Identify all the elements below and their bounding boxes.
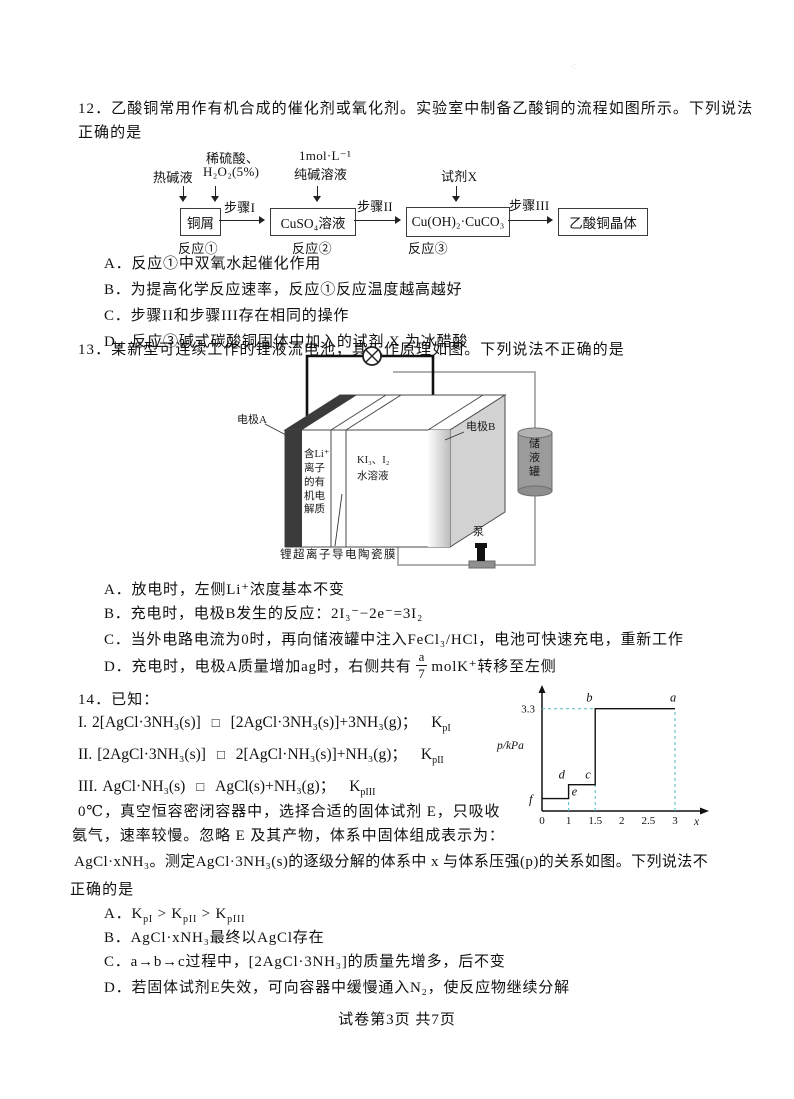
option-label: D． bbox=[104, 655, 131, 676]
electrode-b-label: 电极B bbox=[466, 421, 495, 435]
q14-para-line4: 正确的是 bbox=[70, 878, 134, 899]
flow-step1: 步骤I bbox=[224, 197, 255, 216]
option-text: a→b→c过程中，[2AgCl·3NH₃]的质量先增多，后不变 bbox=[131, 954, 506, 970]
k-symbol: K bbox=[349, 778, 360, 795]
electrode-b-front-shade bbox=[428, 430, 450, 547]
option-text: 反应①中双氧水起催化作用 bbox=[131, 256, 321, 272]
equation-number: III. bbox=[78, 778, 97, 795]
x-tick-label: 2 bbox=[619, 815, 625, 827]
y-tick-label: 3.3 bbox=[521, 704, 535, 716]
point-label-c: c bbox=[585, 768, 591, 782]
q12-option-b: B．为提高化学反应速率，反应①反应温度越高越好 bbox=[104, 278, 462, 299]
k-subscript: pI bbox=[442, 723, 450, 734]
down-arrow-icon bbox=[317, 186, 318, 201]
fraction-denominator: 7 bbox=[418, 666, 425, 681]
q14-option-a: A．KpI > KpII > KpIII bbox=[104, 902, 245, 925]
x-axis-label: x bbox=[693, 816, 700, 828]
flow-input-reagent-x: 试剂X bbox=[441, 166, 477, 185]
q14-option-b: B．AgCl·xNH₃最终以AgCl存在 bbox=[104, 926, 324, 947]
flow-box-cuso4: CuSO₄溶液 bbox=[270, 208, 356, 236]
q12-stem-line1: 12．乙酸铜常用作有机合成的催化剂或氧化剂。实验室中制备乙酸铜的流程如图所示。下… bbox=[78, 97, 753, 118]
k-subscript: pIII bbox=[360, 787, 375, 798]
q14-chart-axes bbox=[539, 685, 710, 815]
right-arrow-icon bbox=[219, 220, 264, 221]
right-arrow-icon bbox=[508, 220, 552, 221]
pump-base bbox=[469, 561, 495, 568]
point-label-a: a bbox=[670, 691, 676, 705]
x-tick-label: 0 bbox=[539, 815, 545, 827]
solution-label-line1: KI₃、I₂ bbox=[357, 454, 389, 467]
point-label-e: e bbox=[572, 785, 578, 799]
k-symbol: K bbox=[421, 746, 432, 763]
x-tick-label: 1.5 bbox=[588, 815, 602, 827]
equilibrium-constant: KpIII bbox=[349, 778, 375, 795]
q14-equation-2: II.[2AgCl·3NH₃(s)]□2[AgCl·NH₃(s)]+NH₃(g)… bbox=[78, 742, 444, 766]
option-text: 充电时，电极B发生的反应：2I₃⁻−2e⁻=3I₂ bbox=[131, 606, 423, 622]
option-label: B． bbox=[104, 606, 131, 622]
equilibrium-symbol: □ bbox=[217, 747, 225, 762]
q14-chart: 011.522.533.3abcdef p/kPa x bbox=[495, 683, 730, 835]
y-axis-label: p/kPa bbox=[496, 740, 524, 752]
pump-icon bbox=[477, 546, 485, 561]
equilibrium-constant: KpI bbox=[431, 714, 451, 731]
x-tick-label: 3 bbox=[672, 815, 678, 827]
option-text: 若固体试剂E失效，可向容器中缓慢通入N₂，使反应物继续分解 bbox=[131, 980, 569, 996]
storage-tank-bottom bbox=[518, 486, 552, 496]
flow-input-hot-alkali: 热碱液 bbox=[153, 167, 193, 186]
flow-step2: 步骤II bbox=[357, 196, 393, 215]
leader-electrode-a bbox=[265, 424, 286, 435]
option-label: D． bbox=[104, 980, 131, 996]
option-label: B． bbox=[104, 930, 131, 946]
flow-box-copper: 铜屑 bbox=[180, 208, 221, 236]
stray-mark: ⁖ bbox=[570, 62, 577, 73]
flow-input-soda-line1: 1mol·L⁻¹ bbox=[299, 148, 351, 164]
exam-page: ⁖ 12．乙酸铜常用作有机合成的催化剂或氧化剂。实验室中制备乙酸铜的流程如图所示… bbox=[0, 0, 794, 1099]
k-subscript: pI bbox=[143, 914, 153, 925]
right-arrow-icon bbox=[354, 220, 400, 221]
battery-diagram: 电极A 电极B 含Li⁺离子的有机电解质 KI₃、I₂ 水溶液 储液罐 泵 锂超… bbox=[185, 342, 615, 578]
q14-chart-svg: 011.522.533.3abcdef p/kPa x bbox=[495, 683, 730, 835]
option-label: C． bbox=[104, 308, 131, 324]
electrode-a-front bbox=[285, 430, 302, 547]
equation-number: II. bbox=[78, 746, 92, 763]
battery-diagram-svg bbox=[185, 342, 615, 578]
q12-option-c: C．步骤II和步骤III存在相同的操作 bbox=[104, 304, 349, 325]
q13-option-a: A．放电时，左侧Li⁺浓度基本不变 bbox=[104, 578, 345, 599]
pump-icon-cap bbox=[475, 543, 487, 548]
x-tick-label: 1 bbox=[566, 815, 572, 827]
option-label: A． bbox=[104, 582, 131, 598]
tank-label: 储液罐 bbox=[529, 438, 542, 479]
k-symbol: K bbox=[431, 714, 442, 731]
equilibrium-symbol: □ bbox=[212, 715, 220, 730]
fraction: a7 bbox=[416, 650, 428, 680]
q14-para-line2: 氨气，速率较慢。忽略 E 及其产物，体系中固体组成表示为： bbox=[72, 824, 505, 845]
k-symbol: K bbox=[131, 906, 143, 922]
electrode-a-label: 电极A bbox=[237, 414, 267, 428]
point-label-f: f bbox=[529, 793, 534, 807]
x-tick-label: 2.5 bbox=[642, 815, 656, 827]
membrane-label: 锂超离子导电陶瓷膜 bbox=[280, 548, 397, 562]
pump-label: 泵 bbox=[473, 526, 484, 540]
storage-tank-top bbox=[518, 428, 552, 438]
q14-stem: 14．已知： bbox=[78, 688, 159, 709]
equilibrium-symbol: □ bbox=[196, 779, 204, 794]
equation-lhs: 2[AgCl·3NH₃(s)] bbox=[92, 714, 201, 731]
q13-option-d: D．充电时，电极A质量增加ag时，右侧共有a7molK⁺转移至左侧 bbox=[104, 648, 557, 682]
option-text: 当外电路电流为0时，再向储液罐中注入FeCl₃/HCl，电池可快速充电，重新工作 bbox=[131, 632, 684, 648]
operator: > bbox=[153, 906, 171, 922]
flow-box-basic-carbonate: Cu(OH)₂·CuCO₃ bbox=[406, 207, 510, 237]
point-label-d: d bbox=[559, 768, 566, 782]
equation-lhs: [2AgCl·3NH₃(s)] bbox=[97, 746, 206, 763]
equation-rhs: [2AgCl·3NH₃(s)]+3NH₃(g)； bbox=[231, 714, 418, 731]
option-text: 充电时，电极A质量增加ag时，右侧共有 bbox=[131, 655, 411, 676]
option-text: AgCl·xNH₃最终以AgCl存在 bbox=[131, 930, 325, 946]
k-symbol: K bbox=[171, 906, 183, 922]
q12-stem-line2: 正确的是 bbox=[78, 121, 142, 142]
solution-label-line2: 水溶液 bbox=[357, 470, 389, 483]
q13-option-c: C．当外电路电流为0时，再向储液罐中注入FeCl₃/HCl，电池可快速充电，重新… bbox=[104, 628, 684, 649]
option-label: B． bbox=[104, 282, 131, 298]
q14-option-c: C．a→b→c过程中，[2AgCl·3NH₃]的质量先增多，后不变 bbox=[104, 950, 506, 971]
down-arrow-icon bbox=[456, 186, 457, 201]
page-footer: 试卷第3页 共7页 bbox=[0, 1008, 794, 1029]
option-text: 放电时，左侧Li⁺浓度基本不变 bbox=[131, 582, 344, 598]
q14-equation-1: I.2[AgCl·3NH₃(s)]□[2AgCl·3NH₃(s)]+3NH₃(g… bbox=[78, 710, 451, 734]
q14-equation-3: III.AgCl·NH₃(s)□AgCl(s)+NH₃(g)；KpIII bbox=[78, 774, 375, 798]
option-label: C． bbox=[104, 632, 131, 648]
flow-input-soda-line2: 纯碱溶液 bbox=[294, 164, 347, 183]
option-label: A． bbox=[104, 256, 131, 272]
pressure-step-line bbox=[542, 709, 675, 799]
flow-input-acid-line2: H₂O₂(5%) bbox=[203, 164, 259, 180]
q13-option-b: B．充电时，电极B发生的反应：2I₃⁻−2e⁻=3I₂ bbox=[104, 602, 423, 623]
equation-number: I. bbox=[78, 714, 87, 731]
k-subscript: pIII bbox=[227, 914, 245, 925]
k-symbol: K bbox=[215, 906, 227, 922]
option-label: C． bbox=[104, 954, 131, 970]
flow-rxn3: 反应③ bbox=[408, 238, 448, 257]
equation-rhs: 2[AgCl·NH₃(s)]+NH₃(g)； bbox=[236, 746, 407, 763]
equation-lhs: AgCl·NH₃(s) bbox=[102, 778, 185, 795]
option-text: molK⁺转移至左侧 bbox=[431, 655, 556, 676]
option-text: 为提高化学反应速率，反应①反应温度越高越好 bbox=[131, 282, 463, 298]
flow-box-product: 乙酸铜晶体 bbox=[558, 208, 648, 236]
q14-para-line3: AgCl·xNH₃。测定AgCl·3NH₃(s)的逐级分解的体系中 x 与体系压… bbox=[74, 850, 708, 871]
option-label: A． bbox=[104, 906, 131, 922]
fraction-numerator: a bbox=[416, 650, 428, 666]
equilibrium-constant: KpII bbox=[421, 746, 444, 763]
down-arrow-icon bbox=[183, 186, 184, 201]
electrolyte-label: 含Li⁺离子的有机电解质 bbox=[304, 448, 334, 517]
point-label-b: b bbox=[586, 691, 592, 705]
equation-rhs: AgCl(s)+NH₃(g)； bbox=[215, 778, 335, 795]
option-text: 步骤II和步骤III存在相同的操作 bbox=[131, 308, 350, 324]
q14-para-line1: 0℃，真空恒容密闭容器中，选择合适的固体试剂 E，只吸收 bbox=[78, 800, 500, 821]
k-subscript: pII bbox=[183, 914, 197, 925]
q12-option-a: A．反应①中双氧水起催化作用 bbox=[104, 252, 321, 273]
down-arrow-icon bbox=[215, 186, 216, 201]
q14-option-d: D．若固体试剂E失效，可向容器中缓慢通入N₂，使反应物继续分解 bbox=[104, 976, 570, 997]
k-subscript: pII bbox=[432, 755, 444, 766]
operator: > bbox=[197, 906, 215, 922]
q14-chart-plot: 011.522.533.3abcdef bbox=[521, 691, 678, 827]
flow-step3: 步骤III bbox=[509, 195, 550, 214]
